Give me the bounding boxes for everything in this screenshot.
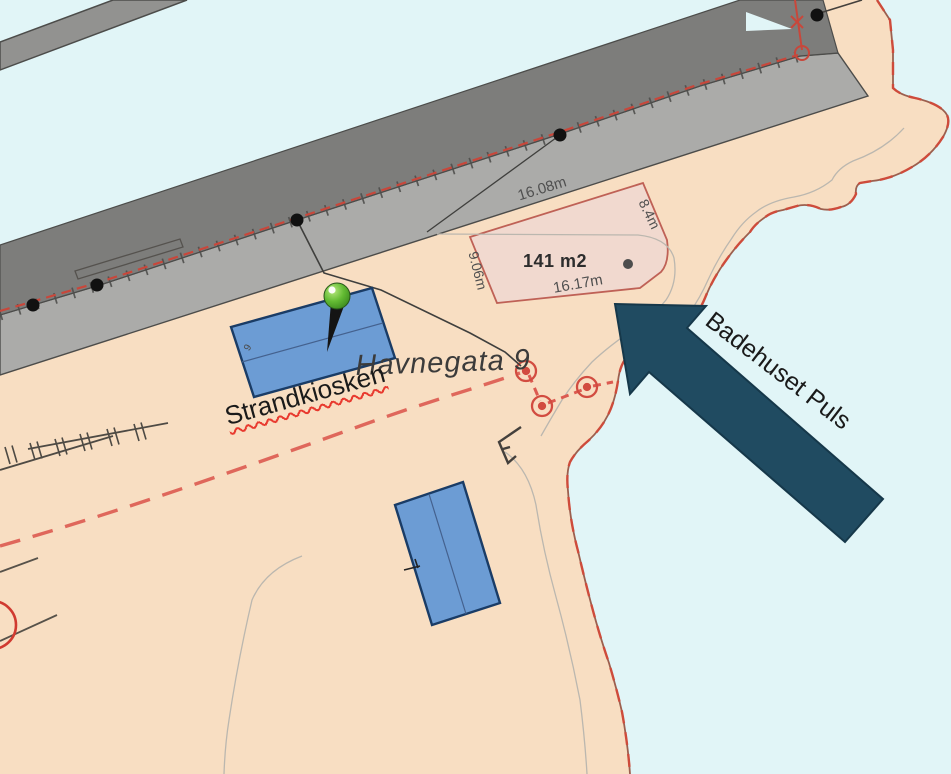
parcel-point-dot — [623, 259, 633, 269]
pin-head — [324, 283, 350, 309]
pin-highlight — [328, 286, 335, 293]
map-canvas[interactable]: Havnegata 9 Strandkiosken Badehuset Puls… — [0, 0, 951, 774]
parcel-area-label: 141 m2 — [523, 252, 587, 270]
